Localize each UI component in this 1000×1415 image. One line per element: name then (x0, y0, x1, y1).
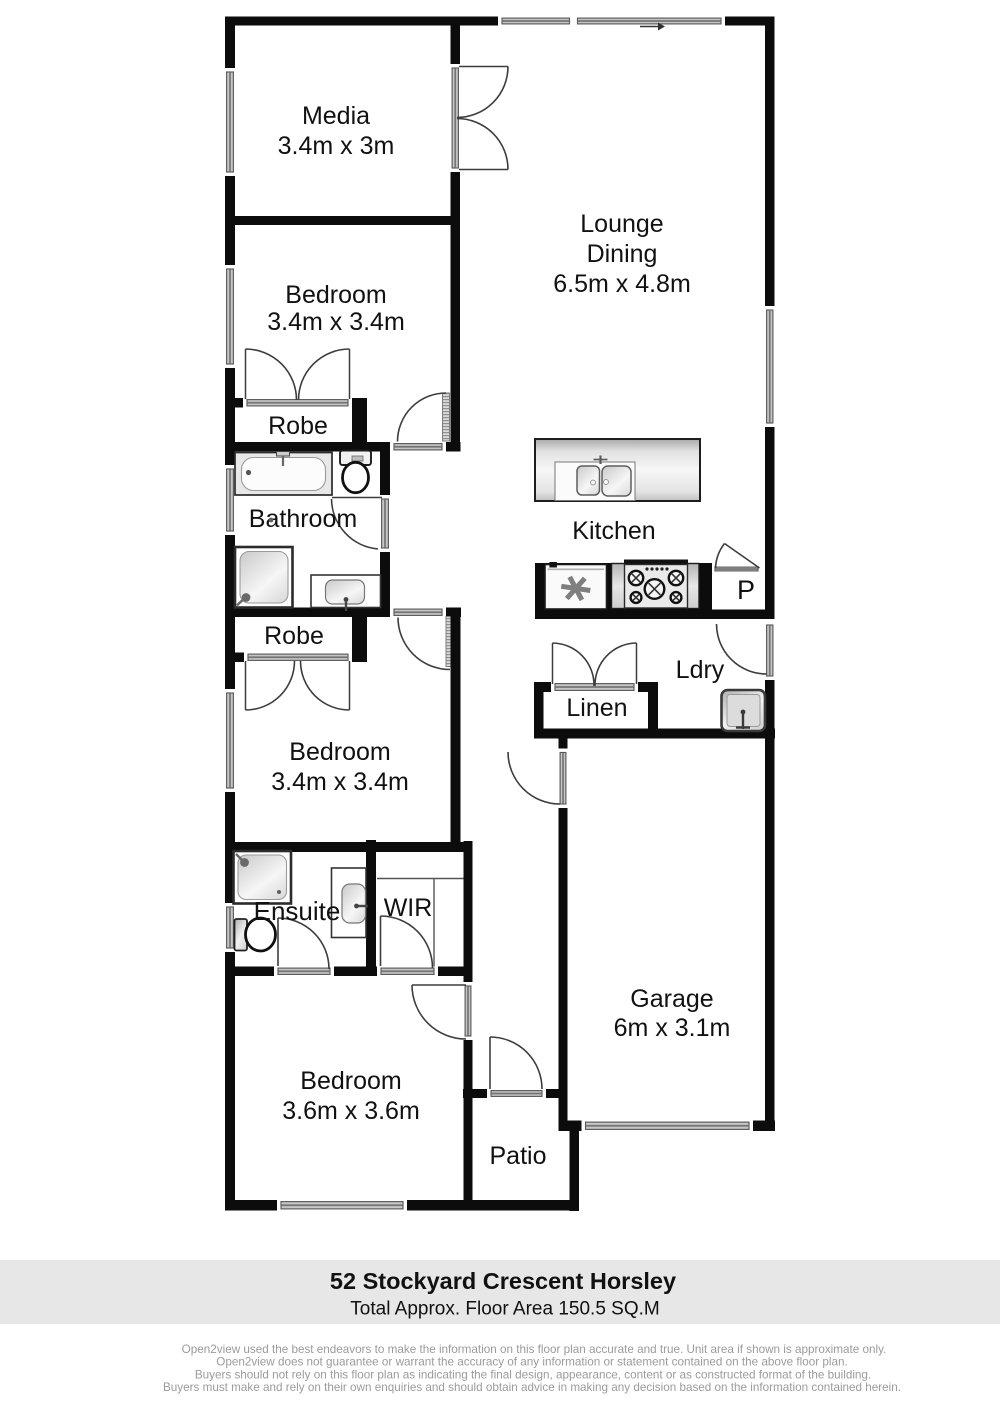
svg-text:52 Stockyard Crescent Horsley: 52 Stockyard Crescent Horsley (330, 1268, 676, 1294)
svg-text:Robe: Robe (268, 412, 328, 440)
svg-text:Bathroom: Bathroom (249, 505, 357, 533)
svg-text:Media: Media (302, 102, 370, 130)
svg-text:Robe: Robe (264, 622, 324, 650)
svg-text:WIR: WIR (384, 894, 433, 922)
svg-text:3.4m x 3m: 3.4m x 3m (278, 132, 395, 160)
svg-text:Patio: Patio (490, 1142, 547, 1170)
svg-text:Bedroom: Bedroom (300, 1067, 401, 1095)
svg-text:Linen: Linen (566, 694, 627, 722)
svg-text:Bedroom: Bedroom (289, 738, 390, 766)
svg-text:Dining: Dining (587, 240, 658, 268)
svg-text:Ldry: Ldry (676, 656, 725, 684)
svg-text:Open2view used the best endeav: Open2view used the best endeavors to mak… (182, 1343, 887, 1356)
svg-text:Bedroom: Bedroom (285, 281, 386, 309)
svg-text:P: P (737, 575, 755, 605)
svg-text:Ensuite: Ensuite (254, 896, 341, 926)
svg-text:Buyers must make and rely on t: Buyers must make and rely on their own e… (163, 1381, 901, 1394)
svg-text:3.6m x 3.6m: 3.6m x 3.6m (282, 1097, 420, 1125)
svg-text:Total Approx. Floor Area 150.5: Total Approx. Floor Area 150.5 SQ.M (350, 1299, 659, 1320)
svg-text:3.4m x 3.4m: 3.4m x 3.4m (271, 768, 409, 796)
svg-text:Open2view does not guarantee o: Open2view does not guarantee or warrant … (216, 1356, 848, 1369)
svg-text:6.5m x 4.8m: 6.5m x 4.8m (553, 270, 691, 298)
svg-text:Garage: Garage (630, 985, 713, 1013)
svg-text:3.4m x 3.4m: 3.4m x 3.4m (267, 308, 405, 336)
svg-text:Buyers should not rely on this: Buyers should not rely on this floor pla… (195, 1368, 871, 1381)
svg-text:Lounge: Lounge (580, 210, 663, 238)
svg-text:Kitchen: Kitchen (572, 517, 655, 545)
svg-text:6m x 3.1m: 6m x 3.1m (614, 1014, 731, 1042)
